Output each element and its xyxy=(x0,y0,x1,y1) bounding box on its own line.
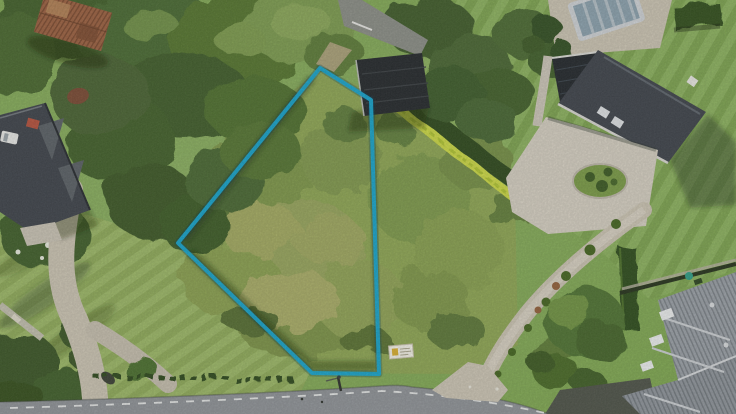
aerial-scene xyxy=(0,0,736,414)
film-grain-light xyxy=(0,0,736,414)
aerial-photo xyxy=(0,0,736,414)
